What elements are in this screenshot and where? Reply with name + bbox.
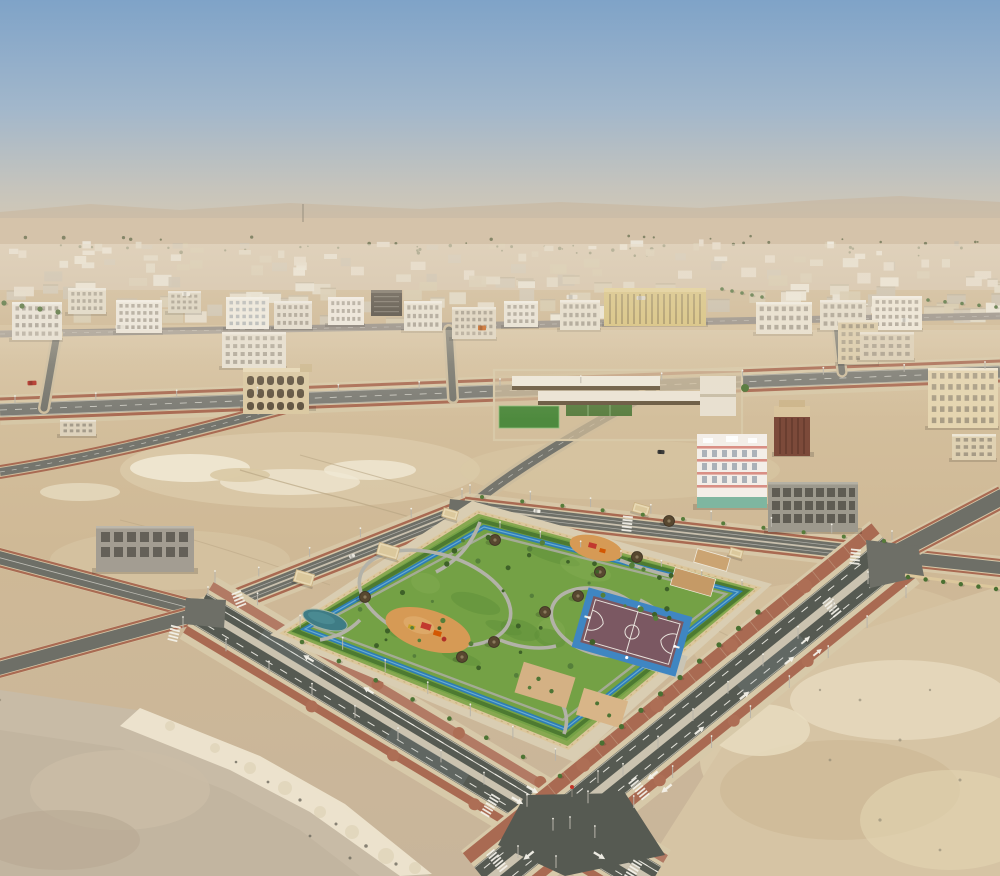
intersection-west	[184, 598, 226, 628]
park-tree	[527, 546, 533, 552]
distant-tree	[62, 236, 66, 240]
tree	[721, 521, 725, 525]
park-tree	[589, 639, 595, 645]
distant-tree	[160, 239, 162, 241]
apartment-block	[949, 434, 997, 462]
tree	[300, 640, 305, 645]
distant-tree	[490, 238, 493, 241]
tree	[761, 526, 765, 530]
tree	[842, 535, 846, 539]
park-tree	[653, 616, 658, 621]
distant-tree	[24, 236, 27, 239]
park-tree	[629, 563, 635, 569]
park-tree	[540, 540, 545, 545]
distant-tree	[710, 238, 712, 240]
park-tree	[461, 539, 465, 543]
distant-tree	[749, 235, 752, 238]
tree	[480, 495, 484, 499]
distant-tree	[879, 241, 882, 244]
park-tree	[486, 535, 491, 540]
distant-tree	[465, 242, 467, 244]
park-tree	[530, 594, 534, 598]
park-tree	[568, 663, 574, 669]
tree	[976, 584, 980, 588]
park-tree	[601, 593, 606, 598]
tree	[716, 642, 721, 647]
park-tree	[539, 626, 543, 630]
tree	[802, 530, 806, 534]
park-tree	[519, 650, 523, 654]
park-tree	[566, 560, 570, 564]
park-tree	[664, 606, 669, 611]
park-tree	[385, 628, 390, 633]
aerial-photo	[0, 0, 1000, 876]
distant-tree	[653, 236, 655, 238]
park-tree	[444, 561, 449, 566]
tree	[521, 755, 526, 760]
distant-tree	[627, 235, 630, 238]
park-tree	[641, 567, 645, 571]
tree	[601, 508, 605, 512]
tree	[736, 626, 741, 631]
tree	[658, 691, 663, 696]
distant-tree	[250, 235, 253, 238]
white-pink-building	[693, 434, 771, 510]
park-tree	[638, 606, 644, 612]
tree	[638, 708, 643, 713]
vehicle	[533, 509, 540, 513]
park-tree	[438, 626, 442, 630]
distant-tree	[841, 238, 843, 240]
park-tree	[374, 643, 379, 648]
distant-tree	[742, 241, 745, 244]
park-tree	[667, 616, 672, 621]
tree	[906, 575, 910, 579]
tree	[923, 577, 927, 581]
park-tree	[413, 654, 417, 658]
park-tree	[475, 558, 480, 563]
park-tree	[506, 565, 511, 570]
tree	[447, 716, 452, 721]
tree	[560, 504, 564, 508]
park-tree	[431, 600, 434, 603]
park-tree	[514, 673, 519, 678]
tree	[882, 539, 886, 543]
distant-tree	[767, 241, 770, 244]
distant-tree	[977, 241, 979, 243]
construction-building-nw	[92, 526, 198, 574]
park-tree	[588, 582, 591, 585]
tree	[484, 735, 489, 740]
tree	[520, 499, 524, 503]
apartment-block	[57, 420, 97, 438]
park-tree	[665, 587, 669, 591]
distant-tree	[122, 236, 125, 239]
distant-tree	[974, 241, 977, 244]
park-tree	[527, 553, 531, 557]
tree	[373, 678, 378, 683]
park-tree	[502, 589, 505, 592]
park-tree	[440, 618, 445, 623]
park-tree	[669, 573, 674, 578]
tree	[410, 697, 415, 702]
tree	[941, 580, 945, 584]
park-tree	[624, 604, 627, 607]
park-tree	[592, 561, 597, 566]
park-tree	[418, 639, 422, 643]
park-tree	[358, 607, 363, 612]
tree	[697, 659, 702, 664]
park-tree	[516, 624, 521, 629]
tree	[337, 659, 342, 664]
park-tree	[410, 626, 414, 630]
tree	[619, 724, 624, 729]
park-tree	[400, 590, 405, 595]
park-tree	[476, 665, 481, 670]
vehicle	[657, 450, 664, 454]
tree	[681, 517, 685, 521]
tree	[959, 582, 963, 586]
construction-building-se	[764, 482, 862, 534]
tree	[994, 587, 998, 591]
tree	[599, 740, 604, 745]
park-tree	[469, 641, 474, 646]
park-tree	[595, 570, 599, 574]
midground-haze	[0, 330, 1000, 420]
tree	[677, 675, 682, 680]
distant-tree	[643, 236, 646, 239]
park-tree	[657, 575, 662, 580]
tree	[641, 513, 645, 517]
park-tree	[452, 548, 458, 554]
distant-tree	[129, 238, 132, 241]
tree	[558, 774, 563, 779]
park-tree	[385, 638, 388, 641]
tree	[755, 609, 760, 614]
